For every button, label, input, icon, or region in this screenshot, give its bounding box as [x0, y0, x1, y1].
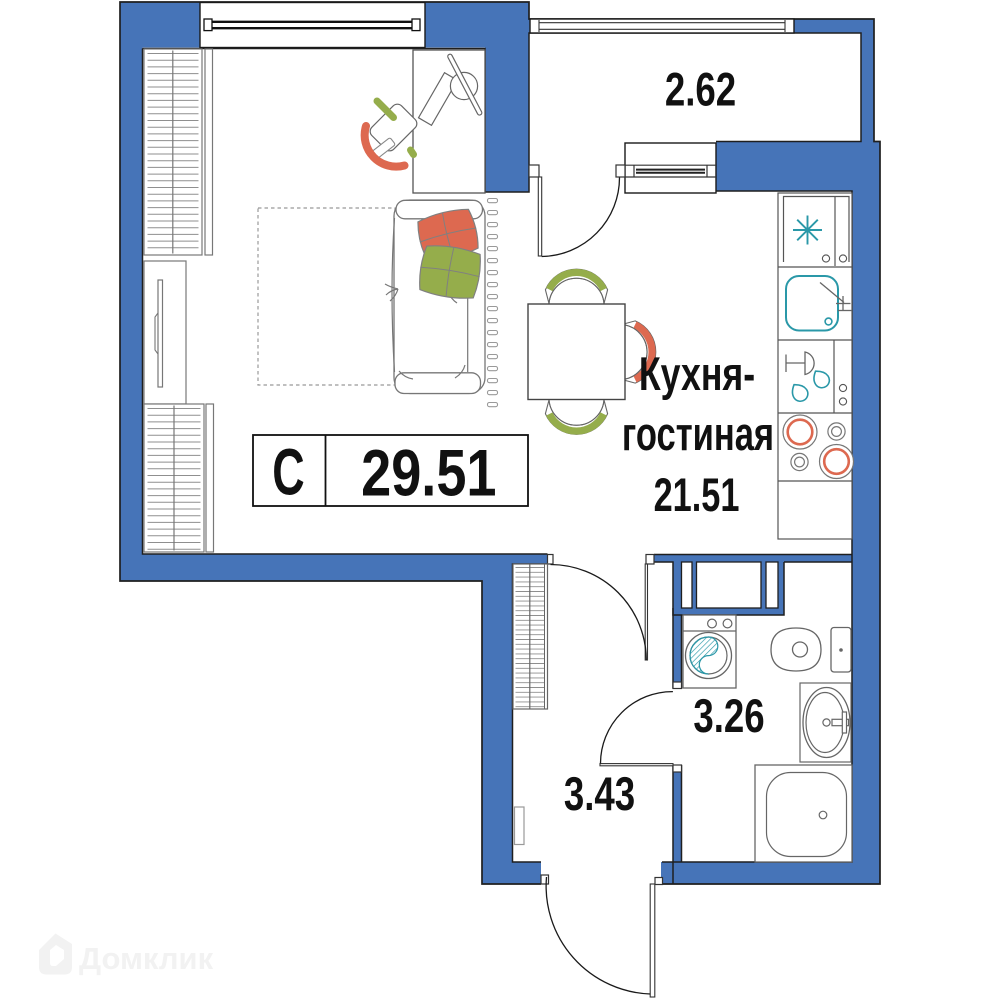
svg-text:Домклик: Домклик [79, 941, 214, 976]
svg-text:С: С [272, 435, 304, 509]
svg-text:21.51: 21.51 [654, 469, 740, 522]
svg-text:29.51: 29.51 [361, 435, 496, 509]
svg-text:2.62: 2.62 [665, 63, 736, 115]
svg-text:Кухня-: Кухня- [639, 347, 755, 400]
svg-text:3.26: 3.26 [693, 690, 764, 742]
svg-text:гостиная: гостиная [622, 408, 774, 460]
svg-text:3.43: 3.43 [564, 768, 635, 820]
